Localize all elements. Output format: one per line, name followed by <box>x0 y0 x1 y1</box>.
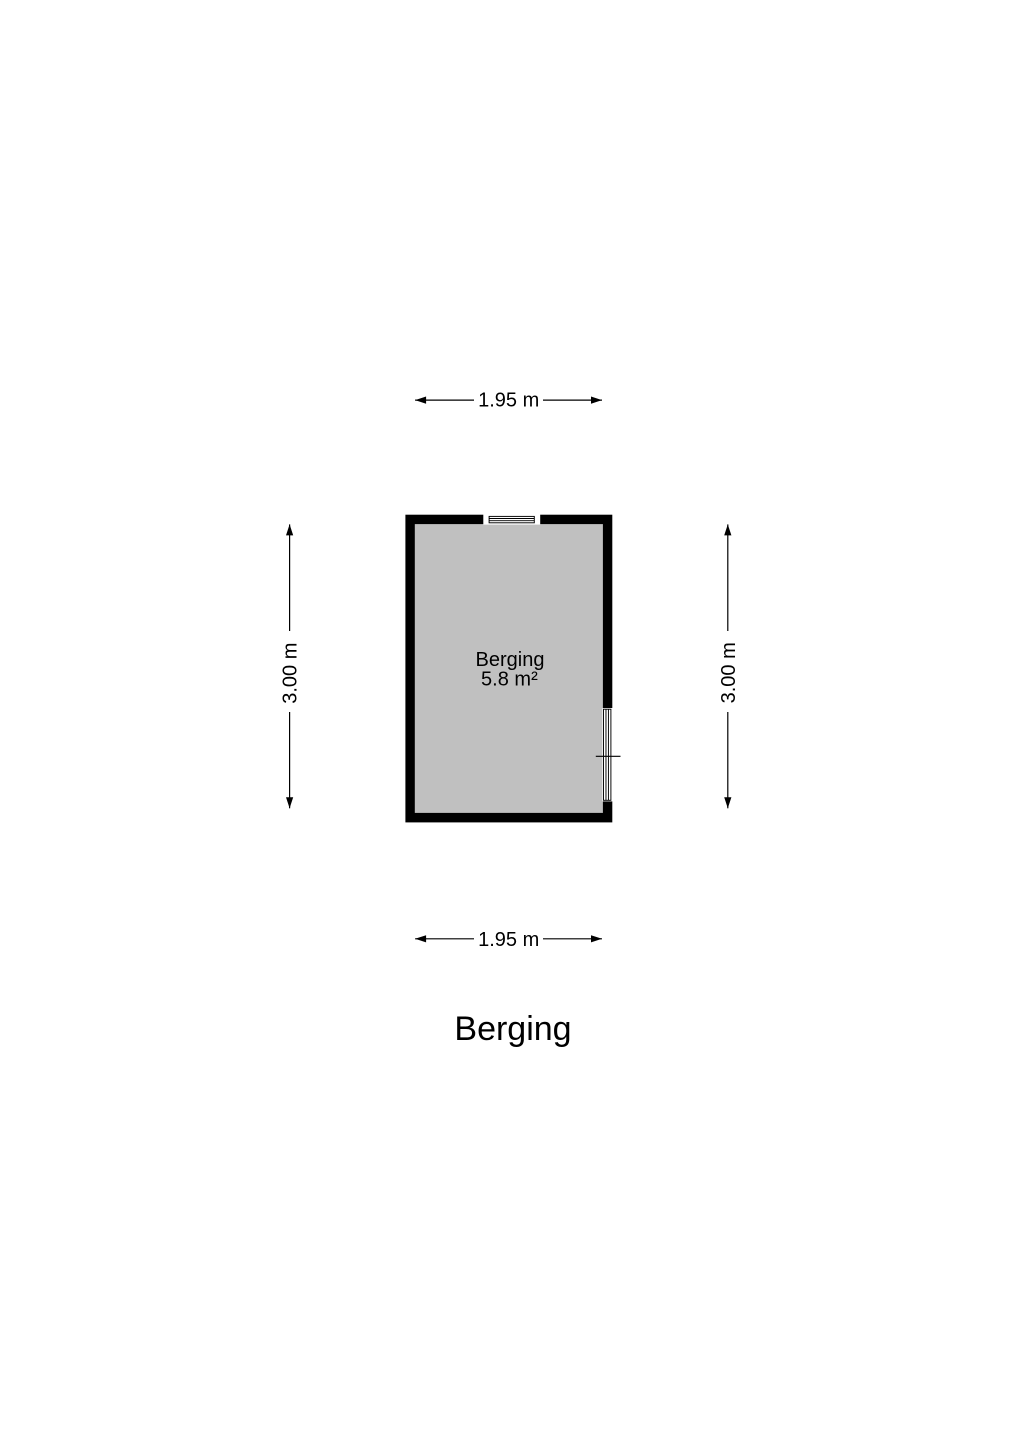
svg-text:3.00 m: 3.00 m <box>280 643 302 704</box>
svg-text:Berging: Berging <box>476 649 545 671</box>
svg-text:1.95 m: 1.95 m <box>478 389 539 411</box>
svg-text:1.95 m: 1.95 m <box>478 929 539 951</box>
svg-text:3.00 m: 3.00 m <box>718 642 740 703</box>
svg-text:Berging: Berging <box>454 1010 571 1048</box>
svg-text:5.8 m²: 5.8 m² <box>481 669 538 691</box>
